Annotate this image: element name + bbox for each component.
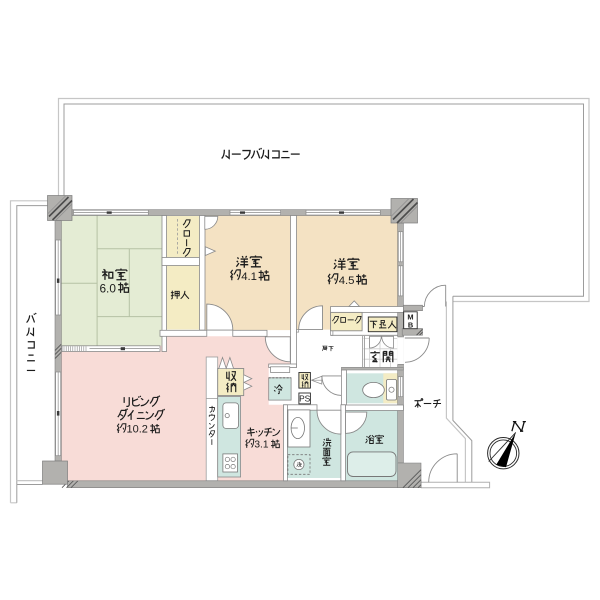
svg-text:4.1: 4.1: [241, 271, 257, 283]
svg-text:4.5: 4.5: [339, 275, 355, 287]
svg-text:6.0: 6.0: [100, 282, 117, 296]
svg-text:10.2: 10.2: [127, 423, 148, 435]
svg-text:B: B: [408, 320, 413, 329]
svg-text:PS: PS: [299, 393, 311, 403]
svg-text:3.1: 3.1: [254, 439, 268, 450]
